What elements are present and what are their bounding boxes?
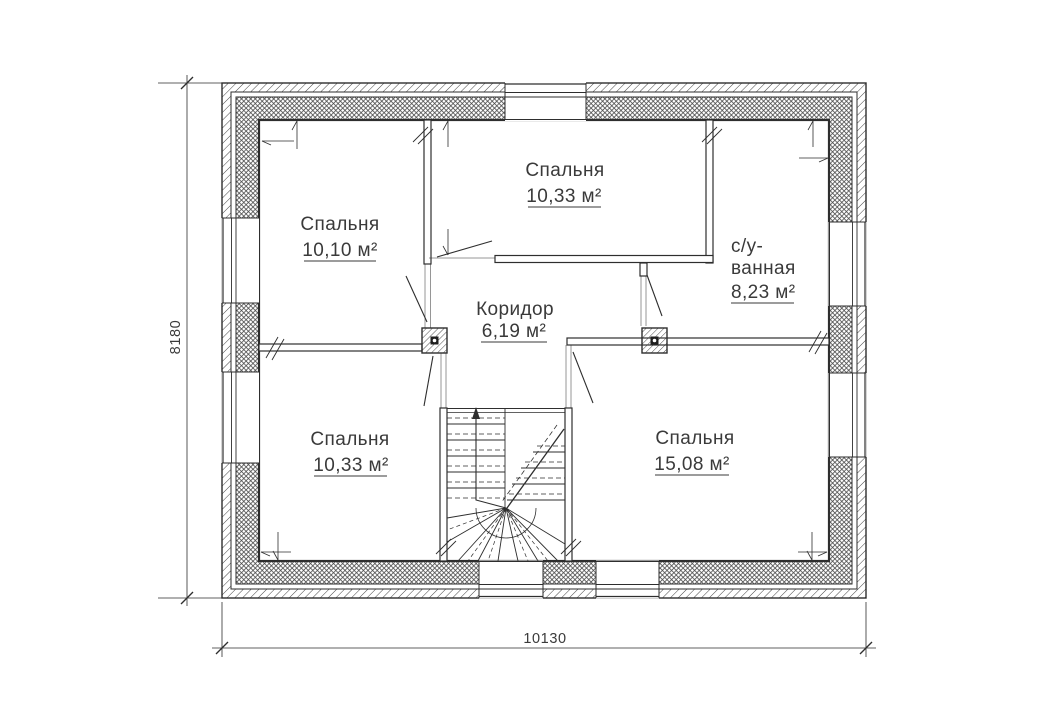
room-area: 10,33 м²	[313, 455, 388, 476]
room-area: 10,33 м²	[526, 186, 601, 207]
window-right-lower	[829, 373, 867, 457]
room-area: 10,10 м²	[302, 240, 377, 261]
room-area: 15,08 м²	[654, 454, 729, 475]
vent-pillar-left	[422, 328, 447, 353]
floor-plan-page: 8180 10130 Спальня 10,10 м² Спальня 10,3…	[0, 0, 1044, 720]
room-name: Спальня	[310, 429, 389, 450]
window-bottom-left	[479, 561, 543, 599]
room-name: Спальня	[300, 214, 379, 235]
window-left-upper	[222, 218, 261, 303]
floor-plan-drawing: 8180 10130 Спальня 10,10 м² Спальня 10,3…	[0, 0, 1044, 720]
room-name-line2: ванная	[731, 258, 796, 279]
dimension-height-label: 8180	[168, 320, 184, 355]
room-area: 6,19 м²	[482, 321, 546, 342]
window-left-lower	[222, 372, 261, 463]
window-bottom-right	[596, 561, 659, 599]
room-name: Спальня	[655, 428, 734, 449]
window-right-upper	[829, 222, 867, 306]
room-area: 8,23 м²	[731, 282, 795, 303]
window-top	[505, 82, 586, 122]
room-label-corridor: Коридор 6,19 м²	[476, 299, 554, 342]
dimension-width-label: 10130	[523, 631, 566, 647]
room-name-line1: с/у-	[731, 236, 763, 257]
room-name: Коридор	[476, 299, 554, 320]
room-name: Спальня	[525, 160, 604, 181]
vent-pillar-right	[642, 328, 667, 353]
